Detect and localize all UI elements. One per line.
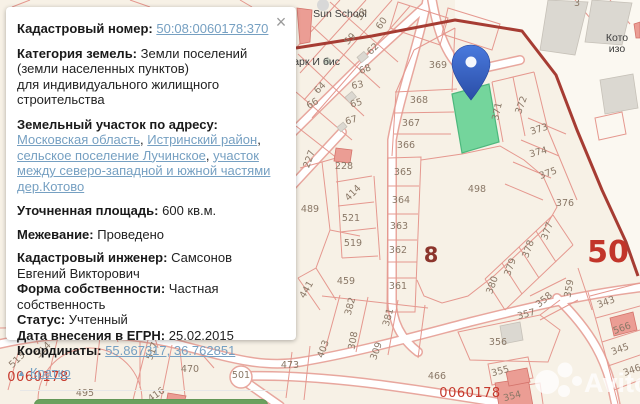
cadastral-number-link[interactable]: 50:08:0060178:370 xyxy=(156,21,268,36)
close-icon[interactable]: × xyxy=(272,13,290,31)
cadastral-map-screen: Sun School -парк И бис Кото изо 58605962… xyxy=(0,0,640,404)
panel-divider xyxy=(20,390,286,391)
parcel-number-label: 376 xyxy=(556,198,574,209)
coordinates-label: Координаты: xyxy=(17,343,102,358)
parcel-number-label: 363 xyxy=(390,221,408,232)
area-row: Уточненная площадь: 600 кв.м. xyxy=(17,203,284,219)
status-value: Учтенный xyxy=(69,312,128,327)
collapse-triangle-icon: ▲ xyxy=(17,366,26,382)
ownership-row: Форма собственности: Частная собственнос… xyxy=(17,281,284,312)
cadastral-number-label: Кадастровый номер: xyxy=(17,21,153,36)
parcel-number-label: 498 xyxy=(468,184,486,195)
survey-label: Межевание: xyxy=(17,227,94,242)
cadastral-zone-number: 8 xyxy=(424,243,439,267)
engineer-row: Кадастровый инженер: Самсонов Евгений Ви… xyxy=(17,250,284,281)
parcel-number-label: 364 xyxy=(392,195,410,206)
parcel-number-label: 489 xyxy=(301,204,319,215)
view-documents-button[interactable]: Посмотреть доступные документы xyxy=(34,399,268,404)
survey-value: Проведено xyxy=(97,227,164,242)
parcel-number-label: 367 xyxy=(402,118,420,129)
cadastral-number-row: Кадастровый номер: 50:08:0060178:370 xyxy=(17,21,284,37)
parcel-number-label: 356 xyxy=(489,337,507,348)
parcel-number-label: 466 xyxy=(428,371,446,382)
address-link-district[interactable]: Истринский район xyxy=(147,132,257,147)
status-label: Статус: xyxy=(17,312,65,327)
address-label: Земельный участок по адресу: xyxy=(17,117,218,132)
collapse-link[interactable]: Кратко xyxy=(30,365,71,380)
parcel-number-label: 369 xyxy=(429,60,447,71)
engineer-label: Кадастровый инженер: xyxy=(17,250,167,265)
address-link-region[interactable]: Московская область xyxy=(17,132,140,147)
collapse-row: ▲Кратко xyxy=(17,365,284,382)
avito-watermark-text: Avito xyxy=(584,368,640,398)
parcel-number-label: 521 xyxy=(342,213,360,224)
parcel-number-label: 362 xyxy=(389,245,407,256)
separator: , xyxy=(257,132,261,147)
category-label: Категория земель: xyxy=(17,46,137,61)
parcel-number-label: 3 xyxy=(574,0,580,9)
parcel-number-label: 228 xyxy=(335,161,353,172)
parcel-number-label: 366 xyxy=(397,140,415,151)
parcel-number-label: 361 xyxy=(389,281,407,292)
status-row: Статус: Учтенный xyxy=(17,312,284,328)
egrn-date-value: 25.02.2015 xyxy=(169,328,234,343)
edge-poi-label-2: изо xyxy=(609,43,626,55)
address-link-settlement[interactable]: сельское поселение Лучинское xyxy=(17,148,206,163)
parcel-number-label: 368 xyxy=(410,95,428,106)
parcel-number-label: 459 xyxy=(337,276,355,287)
cadastral-quarter-label: 0060178 xyxy=(439,386,500,401)
ownership-label: Форма собственности: xyxy=(17,281,165,296)
category-row: Категория земель: Земли поселений (земли… xyxy=(17,46,284,108)
area-value: 600 кв.м. xyxy=(162,203,216,218)
address-row: Земельный участок по адресу: Московская … xyxy=(17,117,284,195)
area-label: Уточненная площадь: xyxy=(17,203,158,218)
coordinates-link[interactable]: 55.867317, 36.762851 xyxy=(105,343,235,358)
egrn-date-label: Дата внесения в ЕГРН: xyxy=(17,328,165,343)
cadastral-zone-number: 50 xyxy=(587,235,629,270)
parcel-info-panel: × Кадастровый номер: 50:08:0060178:370 К… xyxy=(6,7,296,340)
egrn-date-row: Дата внесения в ЕГРН: 25.02.2015 xyxy=(17,328,284,344)
parcel-number-label: 63 xyxy=(351,79,365,92)
coordinates-row: Координаты: 55.867317, 36.762851 xyxy=(17,343,284,359)
category-value-2: для индивидуального жилищного строительс… xyxy=(17,77,219,108)
parcel-number-label: 519 xyxy=(344,238,362,249)
parcel-number-label: 365 xyxy=(394,167,412,178)
survey-row: Межевание: Проведено xyxy=(17,227,284,243)
